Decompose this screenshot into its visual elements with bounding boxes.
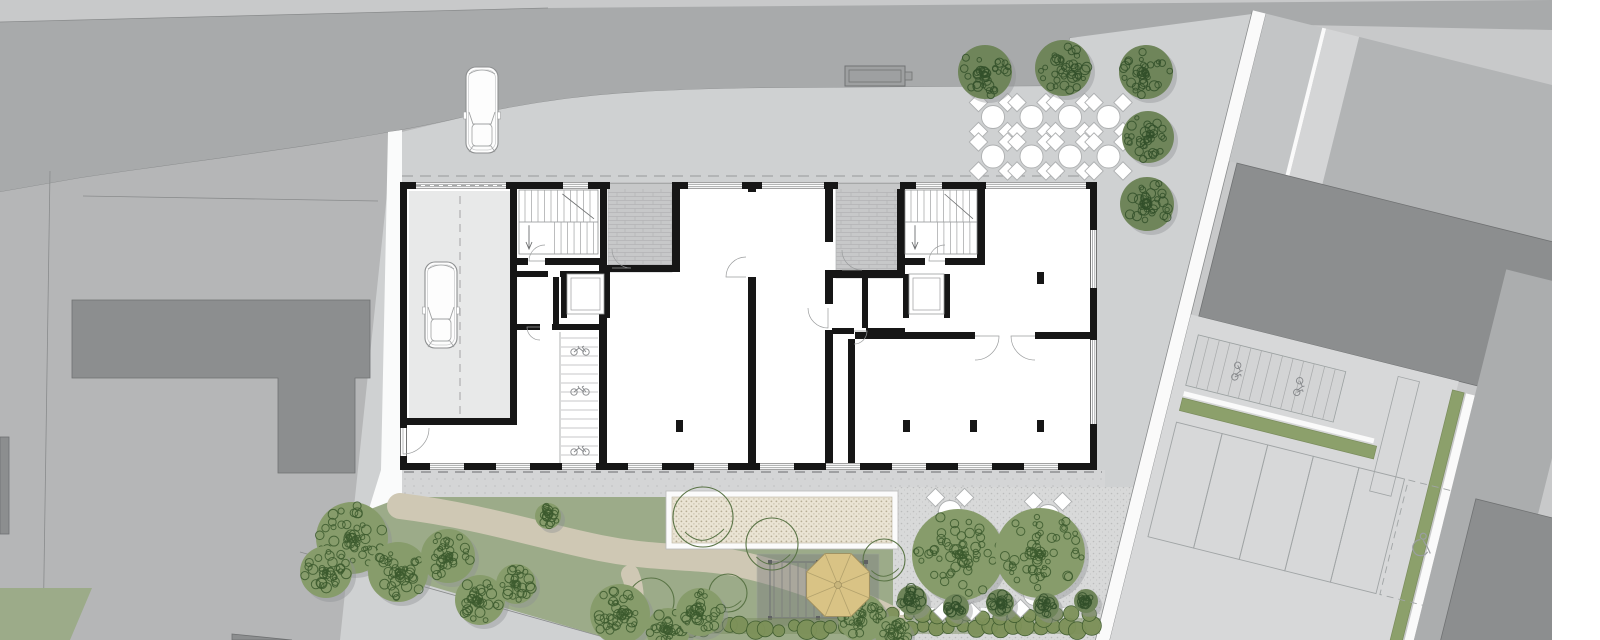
window	[1024, 463, 1058, 469]
wall	[855, 332, 975, 339]
hedge-bush	[730, 616, 748, 634]
window	[496, 463, 530, 469]
wall	[561, 272, 567, 318]
wall	[1090, 182, 1097, 470]
wall	[400, 418, 517, 425]
wall	[552, 324, 606, 330]
staircase-symbol	[905, 190, 977, 254]
wall	[945, 258, 985, 265]
wall	[848, 339, 855, 470]
column	[676, 420, 683, 432]
window	[1091, 230, 1097, 288]
wall	[1035, 332, 1091, 339]
wall	[600, 265, 680, 272]
wall	[748, 277, 756, 470]
window	[563, 182, 588, 188]
column	[903, 420, 910, 432]
wall	[510, 182, 517, 425]
wall	[825, 182, 833, 242]
hedge-bush	[773, 625, 785, 637]
car-symbol	[423, 262, 460, 348]
window	[760, 463, 794, 469]
container-symbol	[845, 66, 912, 86]
window	[694, 463, 728, 469]
wall	[977, 182, 985, 265]
column	[1037, 272, 1044, 284]
window	[762, 182, 824, 188]
window	[688, 182, 742, 188]
staircase-symbol	[519, 190, 598, 254]
wall	[400, 182, 407, 470]
site-plan-drawing	[0, 0, 1600, 640]
car-symbol	[464, 67, 501, 153]
elevator-symbol	[567, 274, 604, 314]
wall	[748, 182, 756, 192]
wall	[825, 270, 905, 278]
wall	[510, 258, 528, 265]
wall	[545, 258, 607, 265]
elevator-symbol	[909, 274, 944, 314]
parasol-symbol	[807, 554, 870, 617]
wall	[903, 274, 909, 318]
window	[986, 182, 1086, 188]
site-plan-canvas	[0, 0, 1600, 640]
wall	[825, 278, 833, 304]
wall	[944, 274, 950, 318]
column	[970, 420, 977, 432]
main-building-floorplan	[400, 176, 1097, 470]
drawing-margin	[1552, 0, 1600, 640]
wall	[510, 271, 548, 277]
wall	[600, 182, 607, 265]
window	[430, 463, 464, 469]
wall	[553, 277, 559, 324]
wall	[672, 182, 680, 272]
window	[892, 463, 926, 469]
column	[1037, 420, 1044, 432]
wall	[832, 328, 854, 334]
hedge-bush	[824, 621, 837, 634]
window	[916, 182, 942, 188]
window	[628, 463, 662, 469]
wall	[905, 258, 925, 265]
wall	[862, 278, 868, 328]
window	[958, 463, 992, 469]
wall	[825, 330, 833, 470]
window	[826, 463, 860, 469]
hedge-bush	[757, 621, 773, 637]
neighbor-building-sliver	[0, 437, 9, 534]
door-opening	[401, 428, 407, 456]
wall	[897, 182, 905, 278]
window	[562, 463, 596, 469]
window	[1091, 340, 1097, 424]
